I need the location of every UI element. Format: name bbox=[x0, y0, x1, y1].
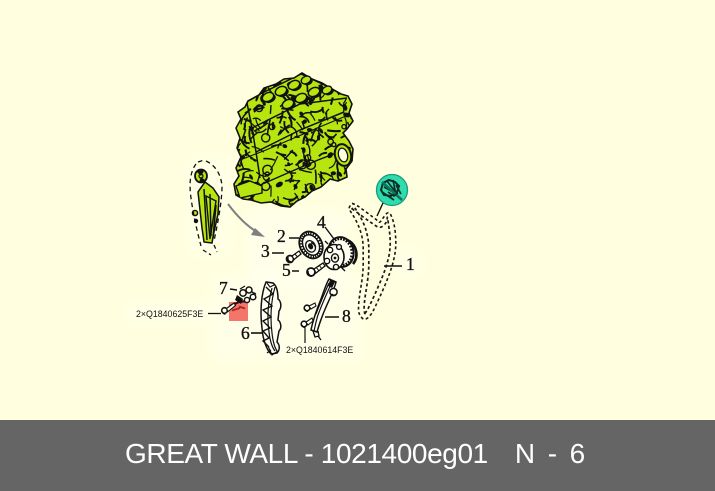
svg-text:2: 2 bbox=[277, 226, 286, 246]
svg-text:6: 6 bbox=[241, 323, 250, 343]
svg-text:4: 4 bbox=[317, 212, 326, 232]
svg-text:1: 1 bbox=[406, 254, 415, 274]
svg-text:8: 8 bbox=[342, 306, 351, 326]
svg-text:2×Q1840625F3E: 2×Q1840625F3E bbox=[136, 309, 203, 319]
svg-text:5: 5 bbox=[282, 260, 291, 280]
svg-text:3: 3 bbox=[261, 241, 270, 261]
svg-text:7: 7 bbox=[219, 278, 228, 298]
svg-text:2×Q1840614F3E: 2×Q1840614F3E bbox=[286, 345, 353, 355]
